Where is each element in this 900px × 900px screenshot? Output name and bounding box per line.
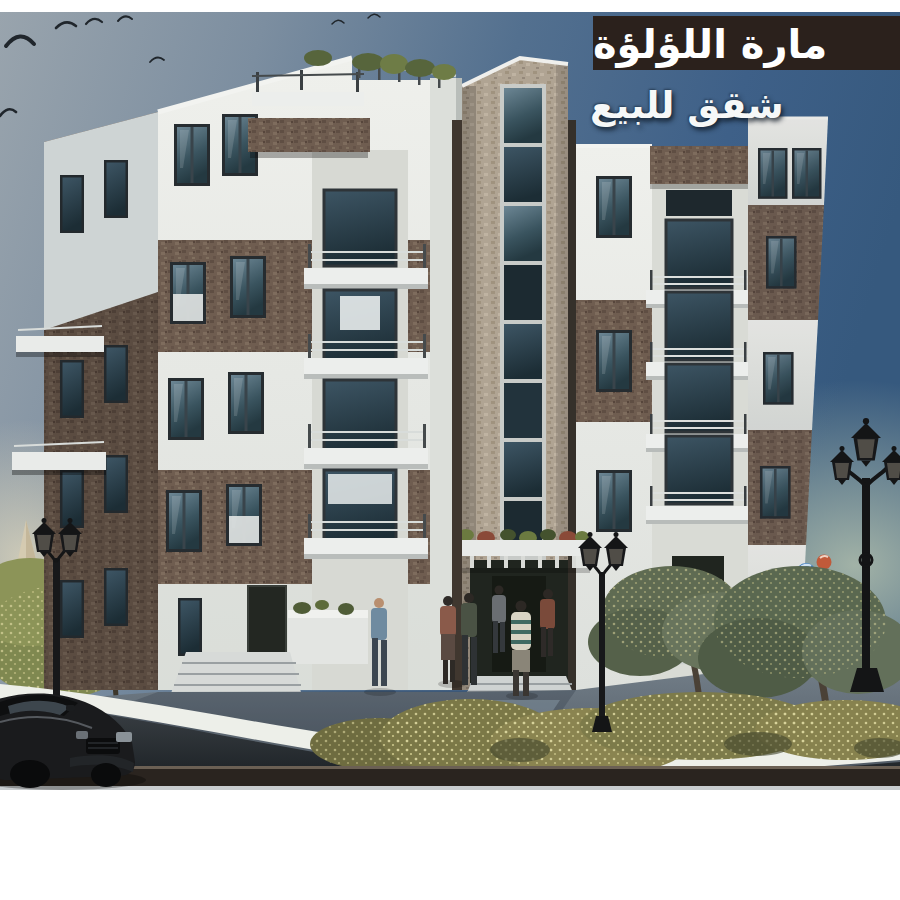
for-sale-caption: شقق للبيع [590, 80, 890, 132]
page-margin-bottom [0, 790, 900, 900]
banner-title-text: مارة اللؤلؤة [593, 16, 900, 70]
stairwell-glass-strip [496, 84, 550, 574]
building-left-wing [12, 50, 462, 696]
page-margin-top [0, 0, 900, 12]
advert-poster: مارة اللؤلؤة شقق للبيع [0, 0, 900, 900]
olive-trees-right [580, 566, 900, 760]
wing-tower-gap [452, 120, 462, 690]
scene-rendering [0, 0, 900, 900]
